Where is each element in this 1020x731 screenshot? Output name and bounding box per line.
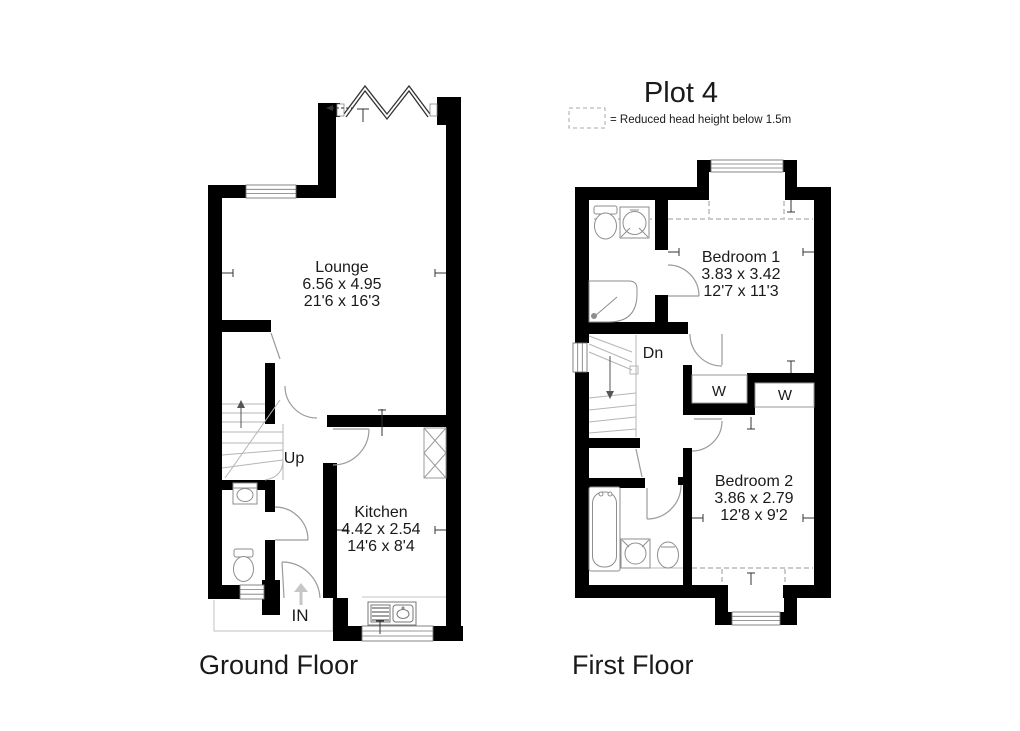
floorplan-page: Lounge 6.56 x 4.95 21'6 x 16'3 Kitchen 4…	[0, 0, 1020, 731]
shower	[589, 281, 637, 322]
bedroom2-door	[692, 419, 722, 451]
bedroom1-dim-imperial: 12'7 x 11'3	[703, 283, 778, 300]
first-floor-plan: Bedroom 1 3.83 x 3.42 12'7 x 11'3 Bedroo…	[572, 160, 831, 680]
room-label-kitchen: Kitchen	[354, 504, 407, 521]
room-label-bedroom1: Bedroom 1	[702, 249, 780, 266]
bedroom1-dim-metric: 3.83 x 3.42	[701, 266, 780, 283]
dn-label: Dn	[643, 345, 663, 362]
wc-toilet	[234, 549, 254, 582]
wc-window	[240, 585, 264, 599]
landing-window	[573, 343, 587, 372]
ground-floor-title: Ground Floor	[199, 650, 358, 680]
wardrobe1-label: W	[712, 383, 727, 400]
page-title: Plot 4	[644, 77, 718, 109]
first-floor-title: First Floor	[572, 650, 694, 680]
bay-window-bottom	[732, 612, 780, 625]
bedroom1-door	[690, 334, 722, 366]
bath	[589, 487, 620, 571]
kitchen-dim-metric: 4.42 x 2.54	[341, 521, 420, 538]
wc-sink	[233, 483, 257, 504]
bedroom2-dim-metric: 3.86 x 2.79	[714, 490, 793, 507]
room-label-lounge: Lounge	[315, 259, 368, 276]
kitchen-dim-imperial: 14'6 x 8'4	[347, 538, 415, 555]
ensuite-toilet	[594, 206, 617, 239]
ground-floor-plan: Lounge 6.56 x 4.95 21'6 x 16'3 Kitchen 4…	[199, 86, 463, 680]
in-label: IN	[292, 606, 309, 625]
lounge-dim-metric: 6.56 x 4.95	[302, 276, 381, 293]
kitchen-sink	[368, 602, 416, 625]
legend-label: = Reduced head height below 1.5m	[610, 114, 791, 126]
lounge-dim-imperial: 21'6 x 16'3	[304, 293, 380, 310]
ensuite-door	[668, 265, 699, 296]
hall-door	[285, 386, 317, 418]
bay-window-top	[711, 160, 783, 172]
stairs-down	[589, 335, 638, 437]
kitchen-door	[333, 429, 369, 465]
entrance-arrow-icon	[294, 583, 308, 605]
bifold-door	[337, 86, 437, 119]
wc-door	[275, 507, 308, 540]
kitchen-window	[362, 626, 433, 641]
floorplan-drawing: Lounge 6.56 x 4.95 21'6 x 16'3 Kitchen 4…	[0, 0, 1020, 731]
lounge-door	[271, 333, 280, 359]
up-label: Up	[284, 450, 305, 467]
legend-swatch	[569, 108, 605, 128]
storage-unit	[424, 428, 446, 478]
ensuite-sink	[620, 207, 649, 238]
wardrobe2-label: W	[778, 387, 793, 404]
bathroom-sink	[621, 539, 650, 568]
room-label-bedroom2: Bedroom 2	[715, 473, 793, 490]
lounge-window	[246, 185, 296, 198]
bedroom2-dim-imperial: 12'8 x 9'2	[720, 507, 788, 524]
bathroom-toilet	[658, 542, 679, 568]
